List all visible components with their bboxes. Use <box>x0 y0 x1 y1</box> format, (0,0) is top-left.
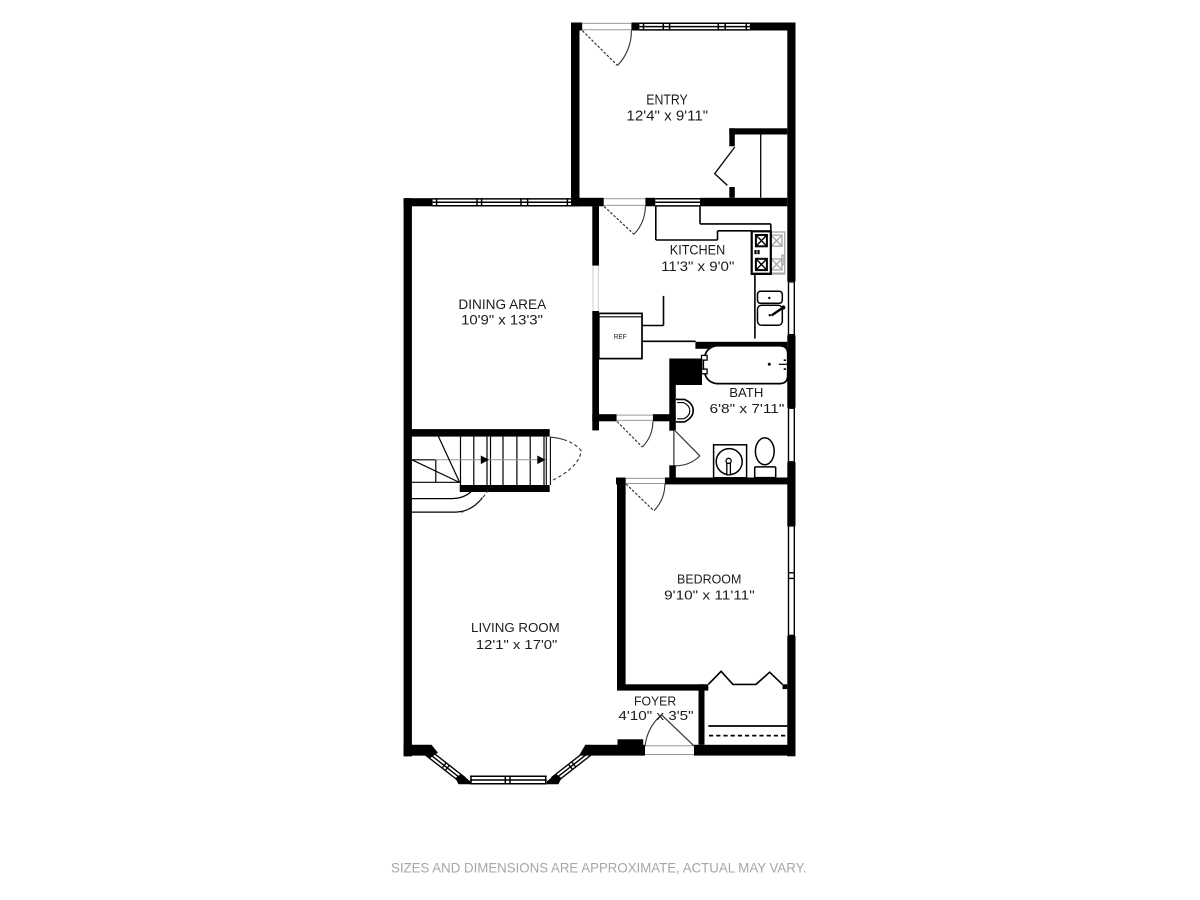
svg-text:ENTRY: ENTRY <box>646 92 688 108</box>
svg-text:6'8" x 7'11": 6'8" x 7'11" <box>710 401 785 416</box>
svg-text:BATH: BATH <box>729 385 763 400</box>
svg-text:SIZES AND DIMENSIONS ARE APPRO: SIZES AND DIMENSIONS ARE APPROXIMATE, AC… <box>391 861 806 876</box>
svg-text:12'1" x 17'0": 12'1" x 17'0" <box>476 637 558 652</box>
svg-text:4'10" x 3'5": 4'10" x 3'5" <box>618 709 693 723</box>
svg-text:11'3" x 9'0": 11'3" x 9'0" <box>661 259 734 274</box>
svg-text:10'9" x 13'3": 10'9" x 13'3" <box>461 313 543 329</box>
svg-text:KITCHEN: KITCHEN <box>670 243 725 258</box>
svg-text:REF: REF <box>614 332 627 341</box>
svg-text:LIVING ROOM: LIVING ROOM <box>471 620 560 635</box>
svg-text:DINING AREA: DINING AREA <box>458 297 546 313</box>
svg-text:BEDROOM: BEDROOM <box>677 572 741 587</box>
svg-text:FOYER: FOYER <box>634 694 676 708</box>
svg-text:12'4" x 9'11": 12'4" x 9'11" <box>626 109 708 125</box>
svg-text:9'10" x 11'11": 9'10" x 11'11" <box>664 588 755 603</box>
